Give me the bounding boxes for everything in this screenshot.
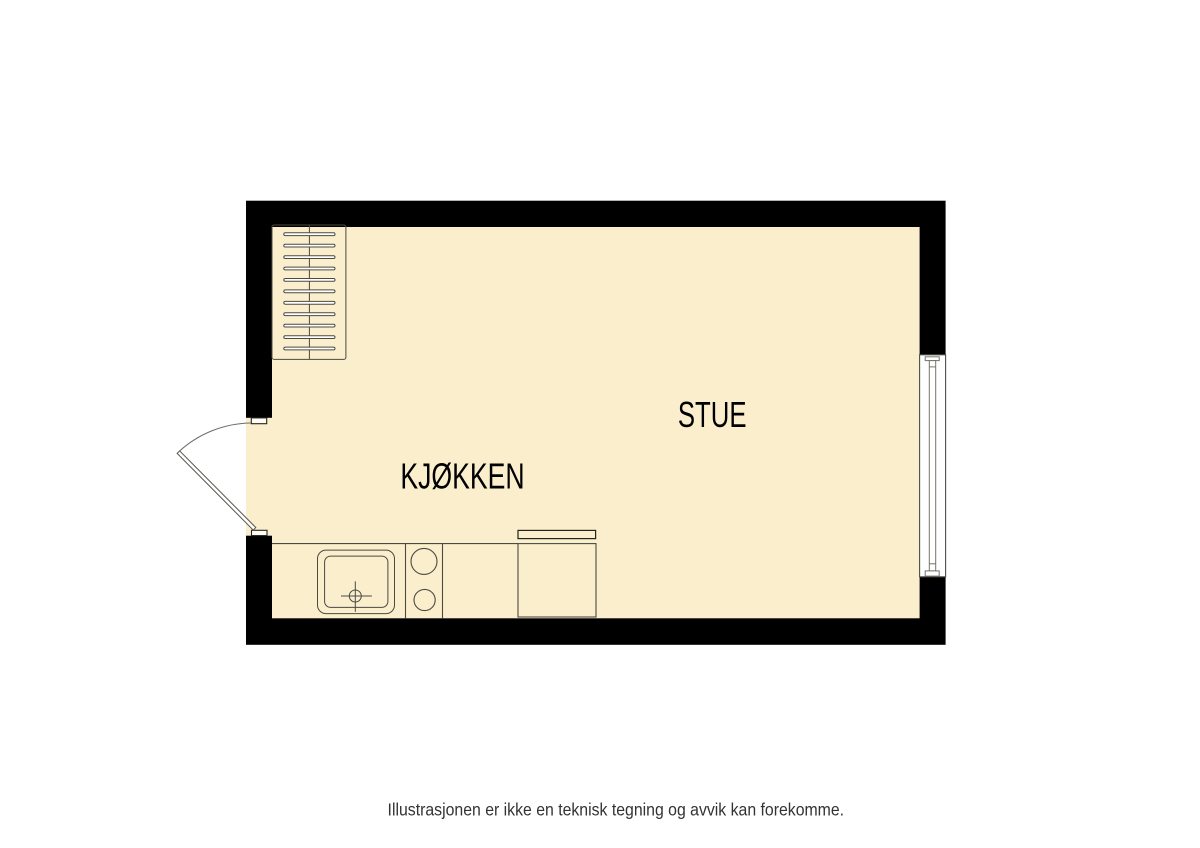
- svg-text:STUE: STUE: [678, 395, 747, 435]
- svg-text:Illustrasjonen er ikke en tekn: Illustrasjonen er ikke en teknisk tegnin…: [388, 800, 844, 820]
- svg-text:KJØKKEN: KJØKKEN: [400, 455, 524, 496]
